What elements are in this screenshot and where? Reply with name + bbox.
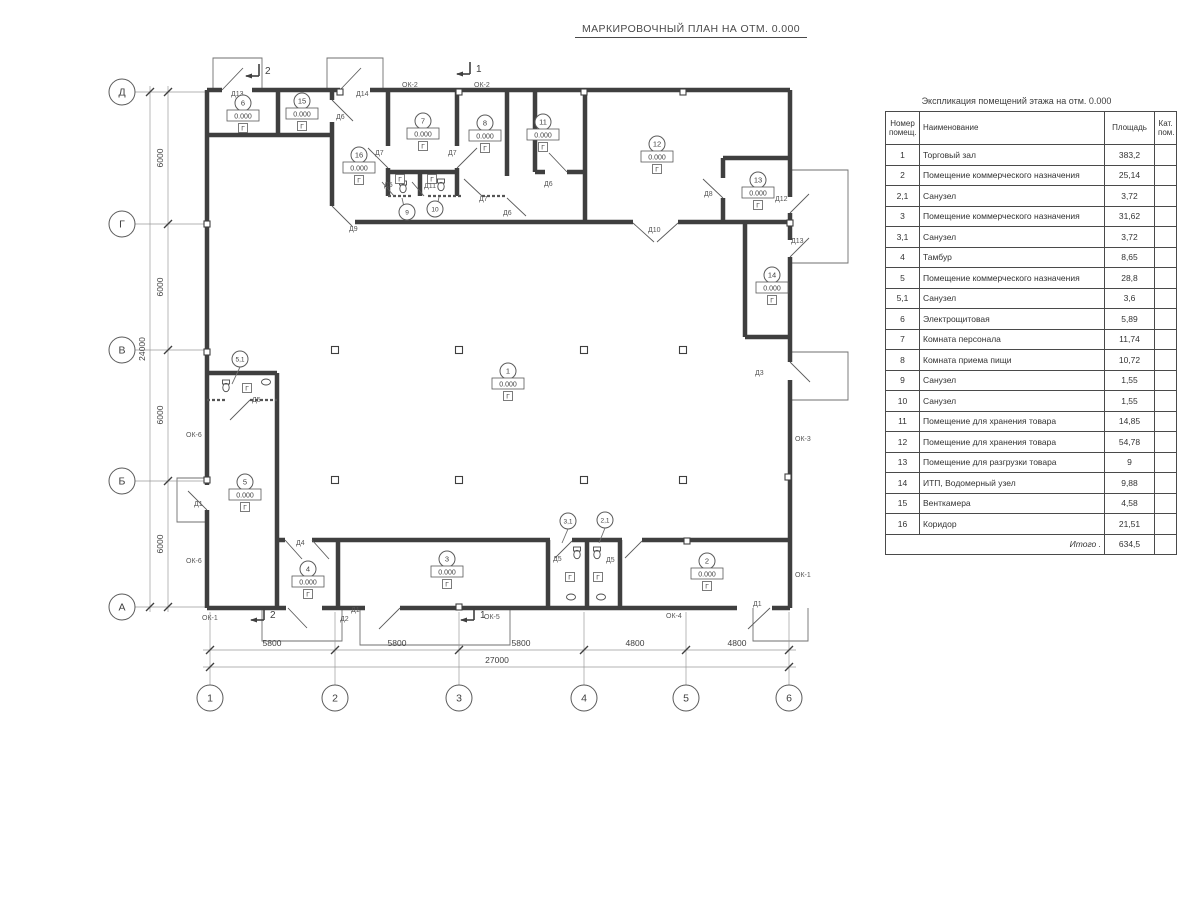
floor-type-mark: Г <box>357 178 361 185</box>
dim-text: 5800 <box>388 638 407 648</box>
schedule-row: 11Помещение для хранения товара14,85 <box>886 411 1177 432</box>
room-category <box>1155 186 1177 207</box>
room-category <box>1155 514 1177 535</box>
room-number: 15 <box>886 493 920 514</box>
room-number-mark: 12 <box>653 140 661 149</box>
room-area: 54,78 <box>1105 432 1155 453</box>
room-number-mark: 2 <box>705 557 709 566</box>
wall-pilaster <box>204 221 210 227</box>
schedule-row: 13Помещение для разгрузки товара9 <box>886 452 1177 473</box>
total-label: Итого . <box>886 534 1105 555</box>
room-area: 31,62 <box>1105 206 1155 227</box>
room-number: 5 <box>886 268 920 289</box>
column <box>332 477 339 484</box>
room-number: 9 <box>886 370 920 391</box>
room-number-mark: 13 <box>754 176 762 185</box>
room-category <box>1155 227 1177 248</box>
door-leaf <box>748 608 770 629</box>
room-category <box>1155 473 1177 494</box>
room-category <box>1155 391 1177 412</box>
column <box>456 477 463 484</box>
door-leaf <box>464 179 482 196</box>
door-leaf <box>790 194 809 213</box>
floor-type-mark: Г <box>300 124 304 131</box>
door-label: Д1 <box>753 601 762 608</box>
room-number: 5,1 <box>886 288 920 309</box>
column <box>680 477 687 484</box>
room-area: 11,74 <box>1105 329 1155 350</box>
dim-text-total: 24000 <box>137 337 147 361</box>
dim-text: 6000 <box>155 534 165 553</box>
window-label: ОК-2 <box>402 82 418 89</box>
door-label: Д4 <box>296 540 305 547</box>
room-area: 9 <box>1105 452 1155 473</box>
door-label: Д5 <box>384 182 393 189</box>
elevation-value: 0.000 <box>293 112 311 119</box>
axis-label: В <box>118 345 125 357</box>
window-label: ОК-2 <box>474 82 490 89</box>
axis-label: 5 <box>683 693 689 705</box>
section-arrow <box>456 72 463 77</box>
schedule-row: 14ИТП, Водомерный узел9,88 <box>886 473 1177 494</box>
room-name: Помещение коммерческого назначения <box>920 165 1105 186</box>
floor-type-mark: Г <box>596 575 600 582</box>
door-label: Д6 <box>503 210 512 217</box>
room-category <box>1155 268 1177 289</box>
section-number: 2 <box>270 610 276 621</box>
schedule-row: 2,1Санузел3,72 <box>886 186 1177 207</box>
door-label: Д6 <box>544 181 553 188</box>
door-label: Д6 <box>336 114 345 121</box>
marker-leader-line <box>232 367 240 384</box>
door-label: Д10 <box>648 227 661 234</box>
room-number-mark: 8 <box>483 119 487 128</box>
door-label: Д2 <box>340 616 349 623</box>
section-number: 1 <box>476 64 482 75</box>
room-category <box>1155 247 1177 268</box>
door-label: Д7 <box>479 196 488 203</box>
wall-pilaster <box>680 89 686 95</box>
section-arrow <box>460 618 467 623</box>
room-area: 3,72 <box>1105 186 1155 207</box>
door-leaf <box>332 206 352 226</box>
schedule-row: 4Тамбур8,65 <box>886 247 1177 268</box>
col-header-category: Кат. пом. <box>1155 112 1177 145</box>
room-category <box>1155 432 1177 453</box>
room-number-mark: 2,1 <box>600 518 609 525</box>
schedule-row: 12Помещение для хранения товара54,78 <box>886 432 1177 453</box>
axis-label: 1 <box>207 693 213 705</box>
door-leaf <box>312 540 329 559</box>
schedule-table: Номер помещ. Наименование Площадь Кат. п… <box>885 111 1177 555</box>
elevation-value: 0.000 <box>476 134 494 141</box>
room-number: 14 <box>886 473 920 494</box>
wall-pilaster <box>204 477 210 483</box>
window-label: ОК-5 <box>484 614 500 621</box>
door-label: Д12 <box>775 196 788 203</box>
elevation-value: 0.000 <box>234 114 252 121</box>
room-number-mark: 5 <box>243 478 247 487</box>
door-leaf <box>288 608 307 628</box>
room-name: Торговый зал <box>920 145 1105 166</box>
column <box>680 347 687 354</box>
room-area: 9,88 <box>1105 473 1155 494</box>
dim-text: 6000 <box>155 148 165 167</box>
room-area: 14,85 <box>1105 411 1155 432</box>
dim-text: 5800 <box>263 638 282 648</box>
toilet-icon <box>438 182 444 190</box>
room-area: 21,51 <box>1105 514 1155 535</box>
room-category <box>1155 350 1177 371</box>
room-name: Помещение коммерческого назначения <box>920 206 1105 227</box>
room-number-mark: 4 <box>306 565 310 574</box>
room-category <box>1155 493 1177 514</box>
dim-text: 6000 <box>155 277 165 296</box>
floor-type-mark: Г <box>655 167 659 174</box>
elevation-value: 0.000 <box>236 493 254 500</box>
schedule-row: 1Торговый зал383,2 <box>886 145 1177 166</box>
room-number-mark: 11 <box>539 118 547 127</box>
room-number: 7 <box>886 329 920 350</box>
floor-type-mark: Г <box>756 203 760 210</box>
room-category <box>1155 329 1177 350</box>
door-leaf <box>230 400 250 420</box>
room-area: 8,65 <box>1105 247 1155 268</box>
dim-text: 6000 <box>155 405 165 424</box>
room-category <box>1155 309 1177 330</box>
room-name: Санузел <box>920 391 1105 412</box>
column <box>581 477 588 484</box>
door-label: Д11 <box>424 183 436 190</box>
elevation-value: 0.000 <box>749 191 767 198</box>
schedule-row: 7Комната персонала11,74 <box>886 329 1177 350</box>
door-leaf <box>222 68 243 90</box>
room-name: Тамбур <box>920 247 1105 268</box>
room-name: Коридор <box>920 514 1105 535</box>
room-number: 10 <box>886 391 920 412</box>
schedule-body: 1Торговый зал383,22Помещение коммерческо… <box>886 145 1177 555</box>
floor-type-mark: Г <box>483 146 487 153</box>
dim-text: 4800 <box>626 638 645 648</box>
room-name: Помещение для разгрузки товара <box>920 452 1105 473</box>
room-number-mark: 10 <box>431 207 439 214</box>
section-arrow <box>245 74 252 79</box>
wall-pilaster <box>337 89 343 95</box>
door-leaf <box>625 541 642 558</box>
elevation-value: 0.000 <box>414 132 432 139</box>
wall-pilaster <box>581 89 587 95</box>
col-header-number: Номер помещ. <box>886 112 920 145</box>
porch-outline <box>790 352 848 400</box>
axis-label: 2 <box>332 693 338 705</box>
floor-type-mark: Г <box>398 177 402 184</box>
room-name: Венткамера <box>920 493 1105 514</box>
room-category <box>1155 411 1177 432</box>
door-label: Д9 <box>349 226 358 233</box>
room-area: 1,55 <box>1105 391 1155 412</box>
floor-type-mark: Г <box>445 582 449 589</box>
door-leaf <box>790 362 810 382</box>
room-name: Помещение коммерческого назначения <box>920 268 1105 289</box>
axis-label: Г <box>119 219 125 231</box>
room-number: 11 <box>886 411 920 432</box>
room-number: 13 <box>886 452 920 473</box>
wall-pilaster <box>456 604 462 610</box>
room-category <box>1155 206 1177 227</box>
room-number-mark: 5,1 <box>235 357 244 364</box>
schedule-row: 3,1Санузел3,72 <box>886 227 1177 248</box>
room-name: Комната приема пищи <box>920 350 1105 371</box>
floor-type-mark: Г <box>243 505 247 512</box>
drawing-sheet: МАРКИРОВОЧНЫЙ ПЛАН НА ОТМ. 0.000 Д13Д14Д… <box>0 0 1200 900</box>
door-label: Д5 <box>252 397 261 404</box>
room-number: 3 <box>886 206 920 227</box>
room-number: 8 <box>886 350 920 371</box>
room-number-mark: 3,1 <box>563 519 572 526</box>
room-number: 4 <box>886 247 920 268</box>
room-number: 6 <box>886 309 920 330</box>
room-area: 1,55 <box>1105 370 1155 391</box>
toilet-icon <box>223 383 229 391</box>
room-name: Помещение для хранения товара <box>920 432 1105 453</box>
floor-type-mark: Г <box>430 177 434 184</box>
floor-type-mark: Г <box>306 592 310 599</box>
room-area: 3,6 <box>1105 288 1155 309</box>
room-number: 1 <box>886 145 920 166</box>
room-number-mark: 15 <box>298 97 306 106</box>
room-category <box>1155 288 1177 309</box>
room-name: ИТП, Водомерный узел <box>920 473 1105 494</box>
door-label: Д7 <box>375 150 384 157</box>
schedule-row: 10Санузел1,55 <box>886 391 1177 412</box>
window-label: ОК-1 <box>795 572 811 579</box>
room-number-mark: 1 <box>506 367 510 376</box>
door-leaf <box>549 153 567 172</box>
floor-type-mark: Г <box>568 575 572 582</box>
door-label: Д5 <box>606 557 615 564</box>
wall-pilaster <box>456 89 462 95</box>
wall-pilaster <box>204 349 210 355</box>
schedule-title: Экспликация помещений этажа на отм. 0.00… <box>885 96 1148 106</box>
schedule-row: 3Помещение коммерческого назначения31,62 <box>886 206 1177 227</box>
room-area: 28,8 <box>1105 268 1155 289</box>
schedule-row: 5,1Санузел3,6 <box>886 288 1177 309</box>
elevation-value: 0.000 <box>534 133 552 140</box>
floor-type-mark: Г <box>506 394 510 401</box>
room-name: Санузел <box>920 227 1105 248</box>
elevation-value: 0.000 <box>763 286 781 293</box>
room-category <box>1155 452 1177 473</box>
sink-icon <box>262 379 271 385</box>
elevation-value: 0.000 <box>299 580 317 587</box>
window-label: ОК-3 <box>795 436 811 443</box>
schedule-row: 16Коридор21,51 <box>886 514 1177 535</box>
schedule-row: 6Электрощитовая5,89 <box>886 309 1177 330</box>
elevation-value: 0.000 <box>698 572 716 579</box>
porch-outline <box>790 170 848 263</box>
schedule-total-row: Итого .634,5 <box>886 534 1177 555</box>
window-label: ОК-6 <box>186 432 202 439</box>
room-number-mark: 9 <box>405 210 409 217</box>
door-label: Д3 <box>755 370 764 377</box>
schedule-row: 8Комната приема пищи10,72 <box>886 350 1177 371</box>
door-leaf <box>457 148 477 168</box>
room-area: 383,2 <box>1105 145 1155 166</box>
room-area: 25,14 <box>1105 165 1155 186</box>
room-category <box>1155 370 1177 391</box>
room-category <box>1155 145 1177 166</box>
room-area: 5,89 <box>1105 309 1155 330</box>
floor-type-mark: Г <box>241 126 245 133</box>
section-arrow <box>250 618 257 623</box>
floor-type-mark: Г <box>705 584 709 591</box>
toilet-icon <box>400 184 406 192</box>
room-name: Помещение для хранения товара <box>920 411 1105 432</box>
room-category <box>1155 165 1177 186</box>
room-number: 16 <box>886 514 920 535</box>
room-number-mark: 14 <box>768 271 776 280</box>
floor-type-mark: Г <box>245 386 249 393</box>
dim-text: 5800 <box>512 638 531 648</box>
room-name: Санузел <box>920 370 1105 391</box>
axis-label: 6 <box>786 693 792 705</box>
room-number-mark: 3 <box>445 555 449 564</box>
porch-outline <box>753 608 808 641</box>
axis-label: 4 <box>581 693 587 705</box>
room-name: Электрощитовая <box>920 309 1105 330</box>
section-number: 1 <box>480 610 486 621</box>
col-header-name: Наименование <box>920 112 1105 145</box>
room-number-mark: 16 <box>355 151 363 160</box>
room-number: 2 <box>886 165 920 186</box>
room-number: 2,1 <box>886 186 920 207</box>
room-number-mark: 6 <box>241 99 245 108</box>
wall-pilaster <box>785 474 791 480</box>
door-label: Д7 <box>448 150 457 157</box>
column <box>332 347 339 354</box>
elevation-value: 0.000 <box>648 155 666 162</box>
door-label: Д14 <box>356 91 369 98</box>
room-name: Комната персонала <box>920 329 1105 350</box>
toilet-icon <box>594 550 600 558</box>
room-number-mark: 7 <box>421 117 425 126</box>
room-area: 10,72 <box>1105 350 1155 371</box>
axis-label: А <box>118 602 125 614</box>
door-label: Д1 <box>351 607 360 614</box>
total-area: 634,5 <box>1105 534 1155 555</box>
dim-text-total: 27000 <box>485 655 509 665</box>
schedule-row: 9Санузел1,55 <box>886 370 1177 391</box>
marker-leader-line <box>562 529 568 543</box>
door-leaf <box>379 608 400 629</box>
window-label: ОК-6 <box>186 558 202 565</box>
porch-outline <box>177 478 207 522</box>
total-category <box>1155 534 1177 555</box>
elevation-value: 0.000 <box>499 382 517 389</box>
room-name: Санузел <box>920 186 1105 207</box>
wall-pilaster <box>684 538 690 544</box>
door-label: Д1 <box>194 501 203 508</box>
room-number: 12 <box>886 432 920 453</box>
sink-icon <box>597 594 606 600</box>
section-number: 2 <box>265 66 271 77</box>
wall-pilaster <box>787 220 793 226</box>
toilet-icon <box>574 550 580 558</box>
dim-text: 4800 <box>728 638 747 648</box>
elevation-value: 0.000 <box>350 166 368 173</box>
room-number: 3,1 <box>886 227 920 248</box>
floor-type-mark: Г <box>421 144 425 151</box>
col-header-area: Площадь <box>1105 112 1155 145</box>
room-area: 4,58 <box>1105 493 1155 514</box>
axis-label: Д <box>118 87 125 99</box>
door-label: Д13 <box>791 238 804 245</box>
schedule-row: 5Помещение коммерческого назначения28,8 <box>886 268 1177 289</box>
elevation-value: 0.000 <box>438 570 456 577</box>
floor-type-mark: Г <box>541 145 545 152</box>
window-label: ОК-4 <box>666 613 682 620</box>
room-area: 3,72 <box>1105 227 1155 248</box>
axis-label: 3 <box>456 693 462 705</box>
door-leaf <box>340 68 361 90</box>
schedule-row: 2Помещение коммерческого назначения25,14 <box>886 165 1177 186</box>
room-schedule: Экспликация помещений этажа на отм. 0.00… <box>885 96 1148 555</box>
door-label: Д8 <box>704 191 713 198</box>
axis-label: Б <box>119 476 126 488</box>
schedule-row: 15Венткамера4,58 <box>886 493 1177 514</box>
sink-icon <box>567 594 576 600</box>
floor-type-mark: Г <box>770 298 774 305</box>
room-name: Санузел <box>920 288 1105 309</box>
window-label: ОК-1 <box>202 615 218 622</box>
column <box>456 347 463 354</box>
column <box>581 347 588 354</box>
door-label: Д5 <box>553 556 562 563</box>
